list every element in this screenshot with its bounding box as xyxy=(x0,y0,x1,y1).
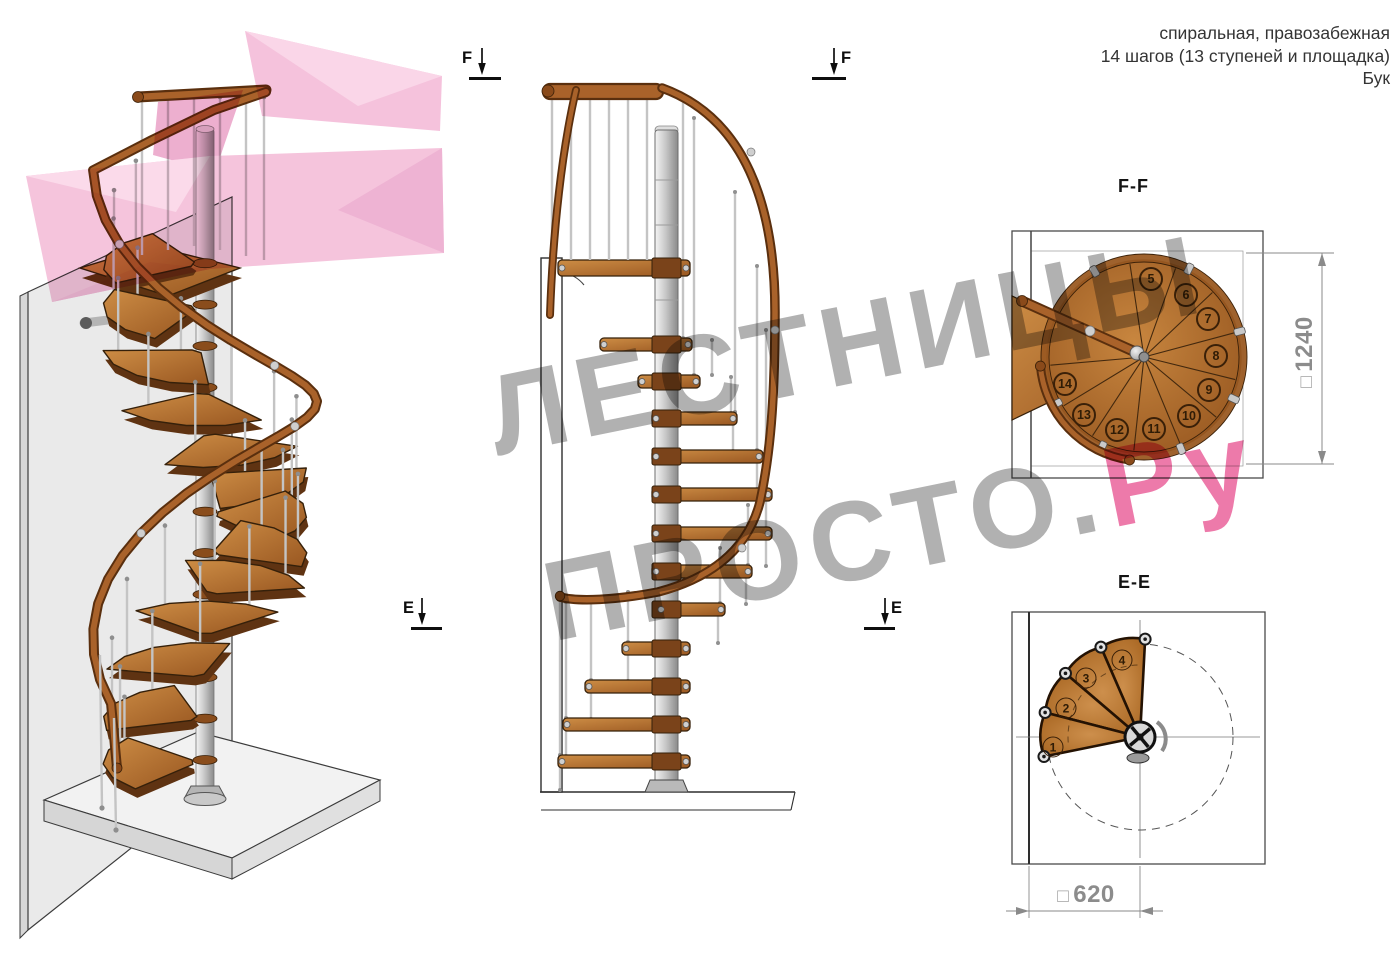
step-number: 8 xyxy=(1204,344,1228,368)
section-datum-line xyxy=(812,77,846,80)
view-plan-ff xyxy=(1012,231,1334,478)
square-section-symbol: □ xyxy=(1296,376,1317,388)
step-number: 9 xyxy=(1197,378,1221,402)
step-number: 12 xyxy=(1105,418,1129,442)
dimension-value: 620 xyxy=(1073,881,1115,908)
section-title-ee: E-E xyxy=(1118,572,1151,593)
drawing-spec: спиральная, правозабежная 14 шагов (13 с… xyxy=(930,22,1390,90)
step-number: 4 xyxy=(1112,650,1133,671)
section-marker-label: E xyxy=(891,600,902,617)
square-section-symbol: □ xyxy=(1057,886,1069,907)
step-number: 13 xyxy=(1072,403,1096,427)
step-number: 3 xyxy=(1076,668,1097,689)
section-datum-line xyxy=(864,627,895,630)
step-number: 1 xyxy=(1043,737,1064,758)
section-cut-arrow-icon xyxy=(828,46,840,76)
section-marker-e-left: E xyxy=(403,596,453,632)
dimension-label-ff: □1240 xyxy=(1291,290,1319,414)
spec-material: Бук xyxy=(930,67,1390,90)
spec-steps: 14 шагов (13 ступеней и площадка) xyxy=(930,45,1390,68)
spec-type: спиральная, правозабежная xyxy=(930,22,1390,45)
section-marker-label: F xyxy=(841,50,851,67)
section-marker-f-right: F xyxy=(806,46,856,82)
section-cut-arrow-icon xyxy=(879,596,891,626)
step-number: 7 xyxy=(1196,307,1220,331)
section-marker-label: F xyxy=(462,50,472,67)
view-elevation xyxy=(540,84,795,810)
step-number: 14 xyxy=(1053,372,1077,396)
section-marker-e-right: E xyxy=(860,596,910,632)
section-marker-label: E xyxy=(403,600,414,617)
drawing-canvas: 5 6 7 8 9 10 11 12 13 14 1 2 3 4 ЛЕСТНИЦ… xyxy=(0,0,1400,961)
view-plan-ee xyxy=(1006,612,1265,918)
section-cut-arrow-icon xyxy=(476,46,488,76)
section-title-ff: F-F xyxy=(1118,176,1149,197)
step-number: 6 xyxy=(1174,283,1198,307)
dimension-value: 1240 xyxy=(1291,316,1318,371)
step-number: 11 xyxy=(1142,417,1166,441)
section-marker-f-left: F xyxy=(462,46,512,82)
step-number: 5 xyxy=(1139,267,1163,291)
step-number: 10 xyxy=(1177,404,1201,428)
dimension-label-ee: □620 xyxy=(1024,881,1148,909)
section-datum-line xyxy=(411,627,442,630)
section-cut-arrow-icon xyxy=(416,596,428,626)
step-number: 2 xyxy=(1056,698,1077,719)
section-datum-line xyxy=(469,77,501,80)
